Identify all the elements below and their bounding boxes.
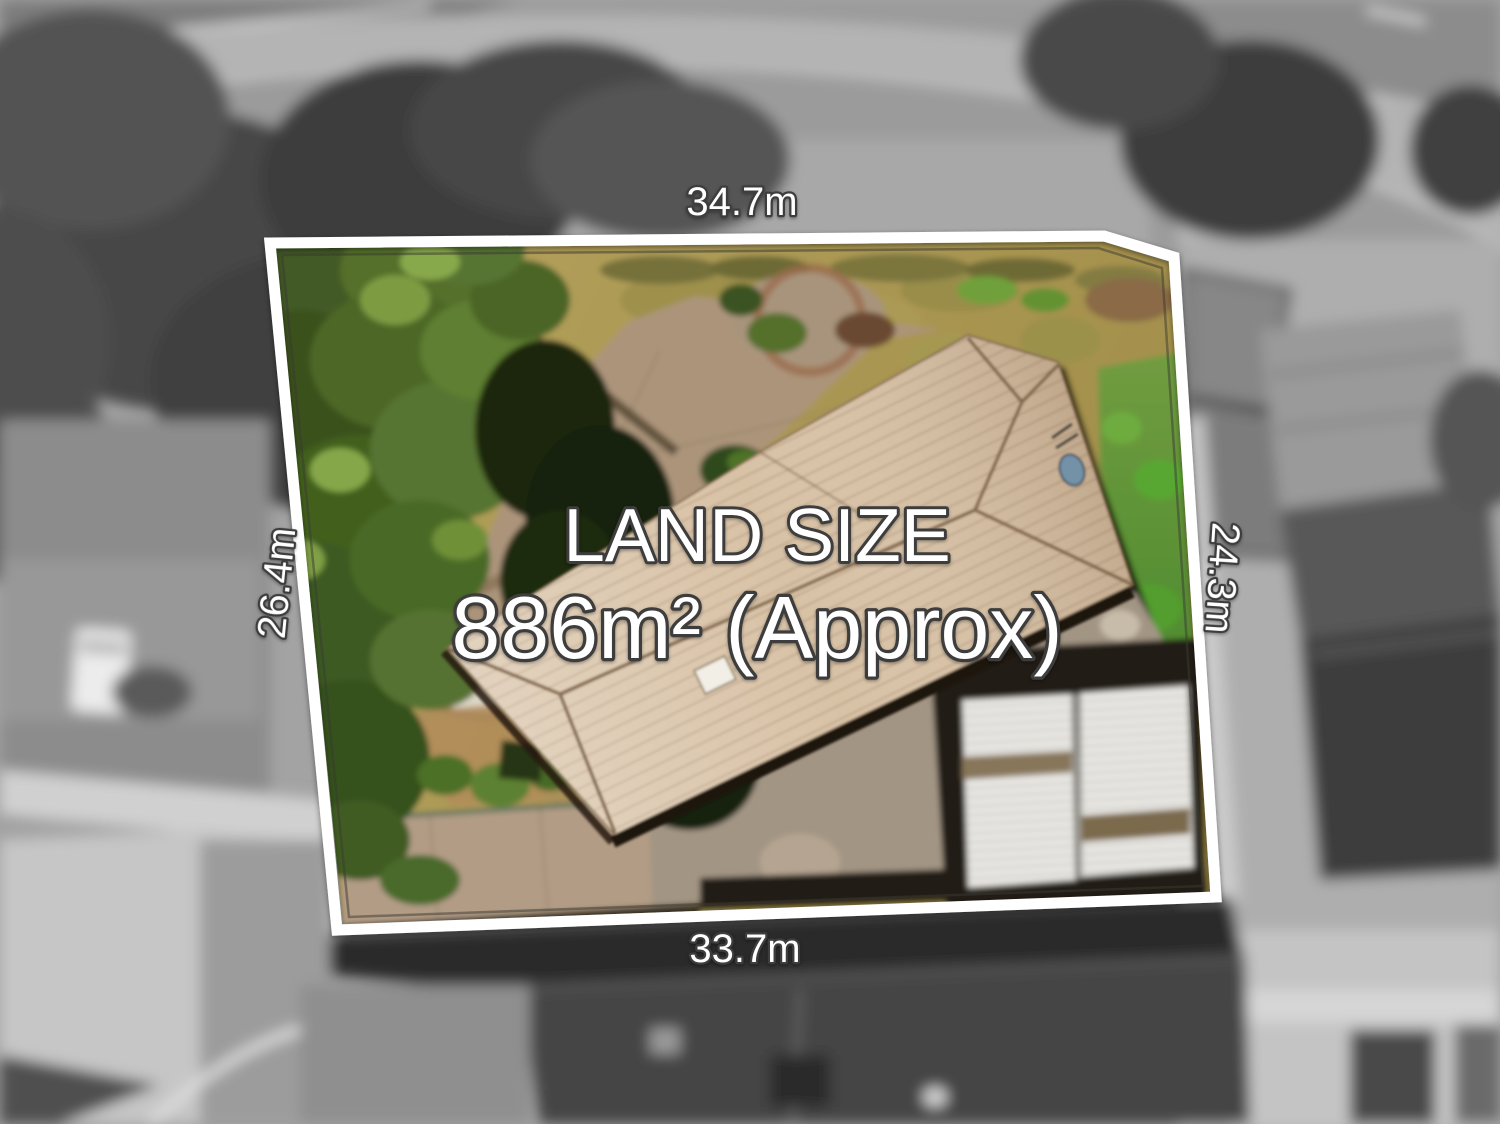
dimension-label-top: 34.7m <box>686 180 797 224</box>
land-size-value: 886m² (Approx) <box>451 578 1062 677</box>
garage-roof <box>930 638 1206 908</box>
dimension-label-bottom: 33.7m <box>689 927 800 971</box>
land-size-title: LAND SIZE <box>563 493 951 577</box>
dimension-label-right: 24.3m <box>1196 521 1247 635</box>
aerial-photo-canvas: 34.7m 26.4m 24.3m 33.7m LAND SIZE 886m² … <box>0 0 1500 1124</box>
aerial-property-photo: 34.7m 26.4m 24.3m 33.7m LAND SIZE 886m² … <box>0 0 1500 1124</box>
